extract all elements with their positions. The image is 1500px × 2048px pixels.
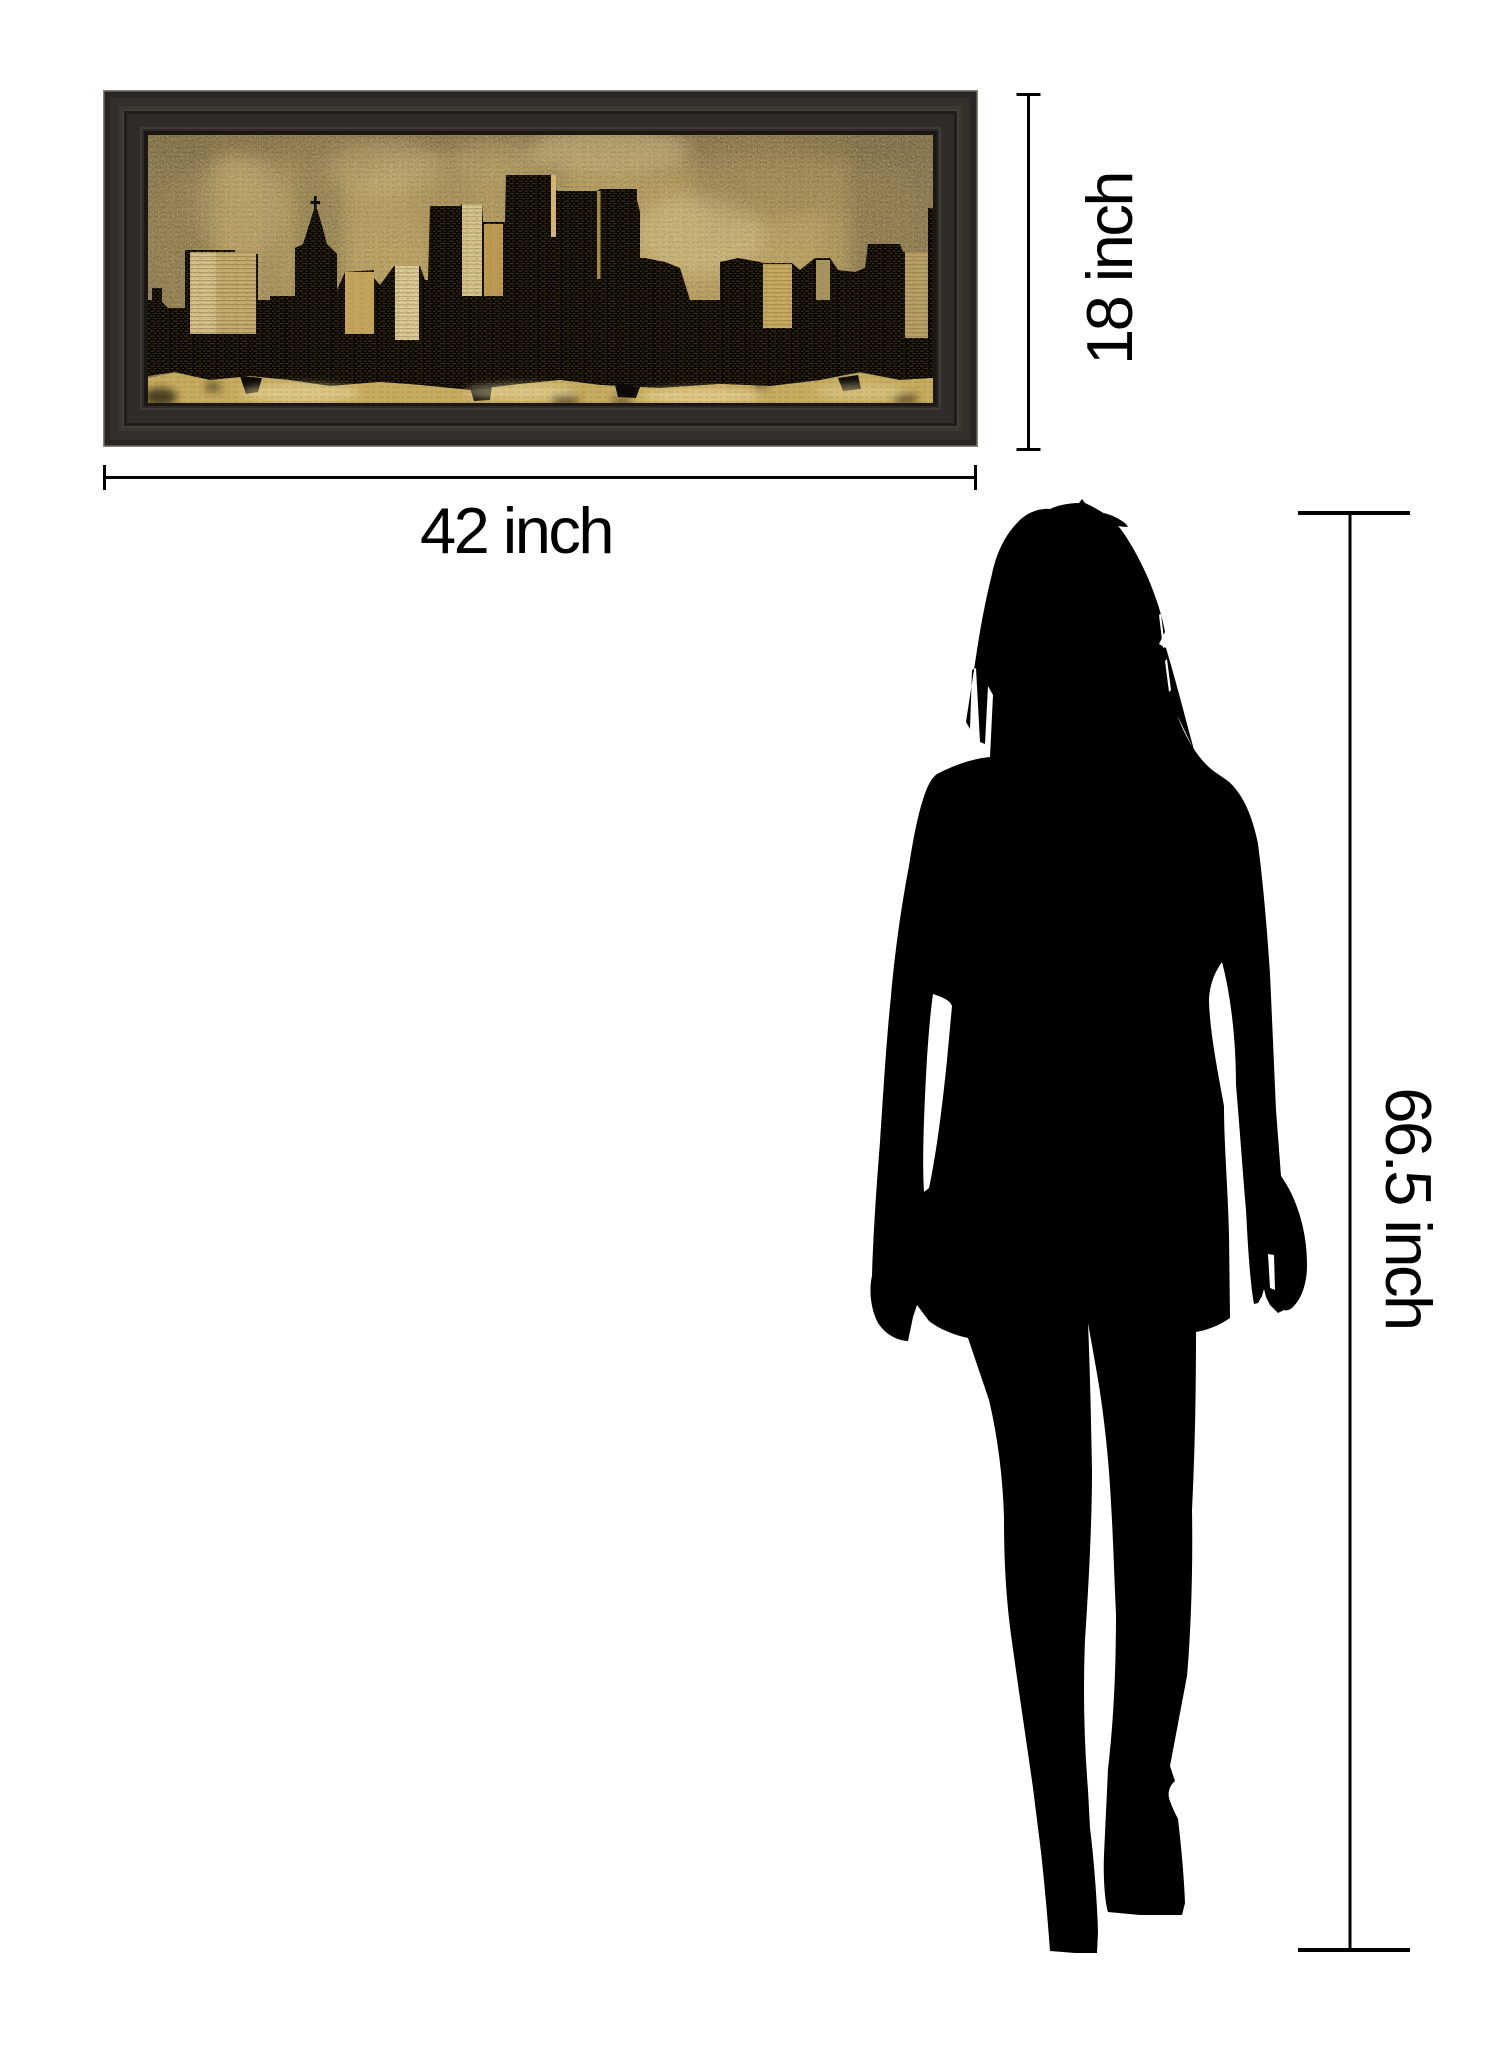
svg-text:66.5 inch: 66.5 inch <box>1372 1087 1445 1328</box>
svg-text:18 inch: 18 inch <box>1073 173 1146 365</box>
svg-text:42 inch: 42 inch <box>420 494 612 567</box>
